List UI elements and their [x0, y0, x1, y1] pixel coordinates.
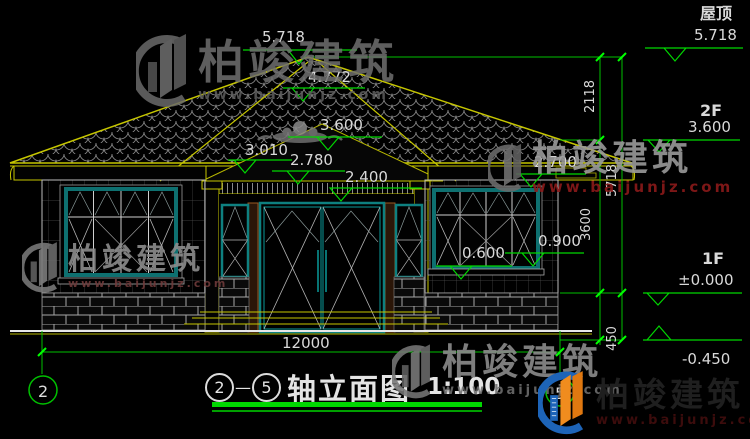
axis-number-left: 2: [38, 382, 48, 401]
sidelight-right: [396, 205, 422, 277]
level-label-apex: 5.718: [262, 30, 305, 45]
level-label-eave-right: 2.700: [534, 155, 577, 170]
title-axis-end: 5: [252, 373, 281, 402]
title-underline-thin: [212, 410, 482, 412]
title-underline: [212, 402, 482, 407]
level-label-eave-left: 3.010: [245, 143, 288, 158]
floor2-label: 2F: [700, 103, 722, 119]
title-axis-start: 2: [205, 373, 234, 402]
roof-level-label: 5.718: [694, 28, 737, 43]
level-label-gable: 3.600: [320, 118, 363, 133]
dim-roof-height: 2118: [584, 80, 597, 113]
level-label-door-top: 2.400: [345, 170, 388, 185]
cad-elevation-screen: 5.718 4.772 3.600 3.010 2.780 2.400 2.70…: [0, 0, 750, 439]
entrance: [219, 194, 424, 332]
title-scale: 1:100: [427, 374, 500, 400]
sidelight-left: [222, 205, 248, 277]
level-label-sill-right: 0.900: [538, 234, 581, 249]
dim-total-height: 5718: [606, 164, 619, 197]
dim-floor-height: 3600: [580, 208, 593, 241]
entry-door: [260, 203, 384, 332]
ground-level-label: -0.450: [682, 352, 730, 367]
level-label-ridge2: 4.772: [308, 70, 351, 85]
level-label-beam: 2.780: [290, 153, 333, 168]
window-left: [66, 189, 176, 275]
dim-total-width: 12000: [282, 336, 330, 351]
level-label-sill-left: 0.600: [462, 246, 505, 261]
floor1-label: 1F: [702, 251, 724, 267]
title-dash: —: [235, 378, 251, 397]
roof-label: 屋顶: [700, 6, 732, 22]
axis-number-right: 5: [555, 384, 565, 403]
left-wing: [42, 180, 205, 293]
floor1-level-label: ±0.000: [678, 273, 734, 288]
dim-plinth-height: 450: [606, 326, 619, 351]
floor2-level-label: 3.600: [688, 120, 731, 135]
